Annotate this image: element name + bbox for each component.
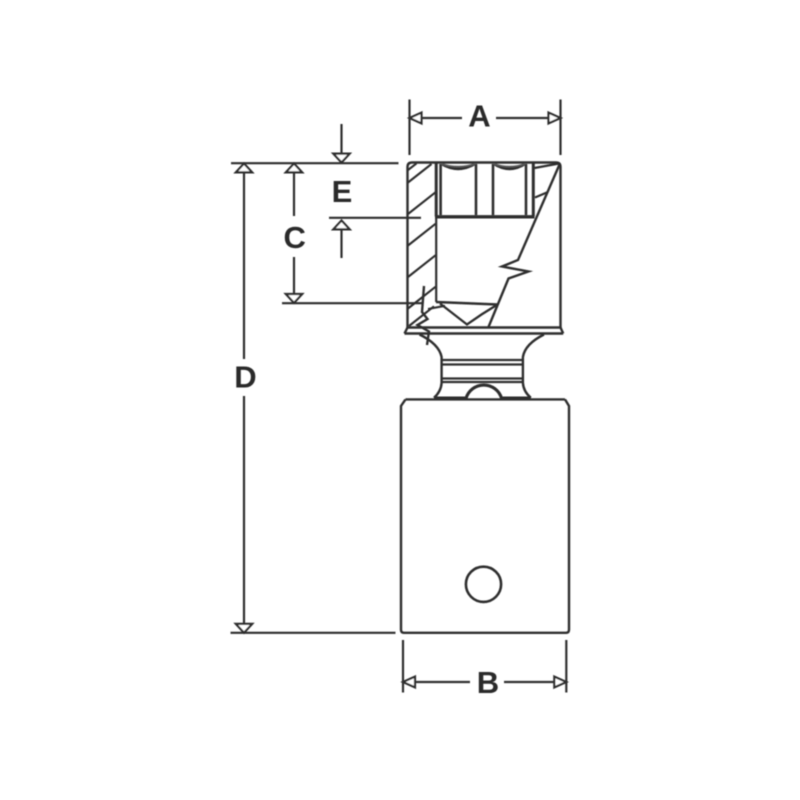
svg-text:A: A	[468, 99, 490, 134]
svg-text:D: D	[234, 360, 256, 395]
svg-text:E: E	[332, 174, 353, 209]
svg-text:C: C	[284, 220, 306, 255]
svg-text:B: B	[477, 665, 499, 700]
